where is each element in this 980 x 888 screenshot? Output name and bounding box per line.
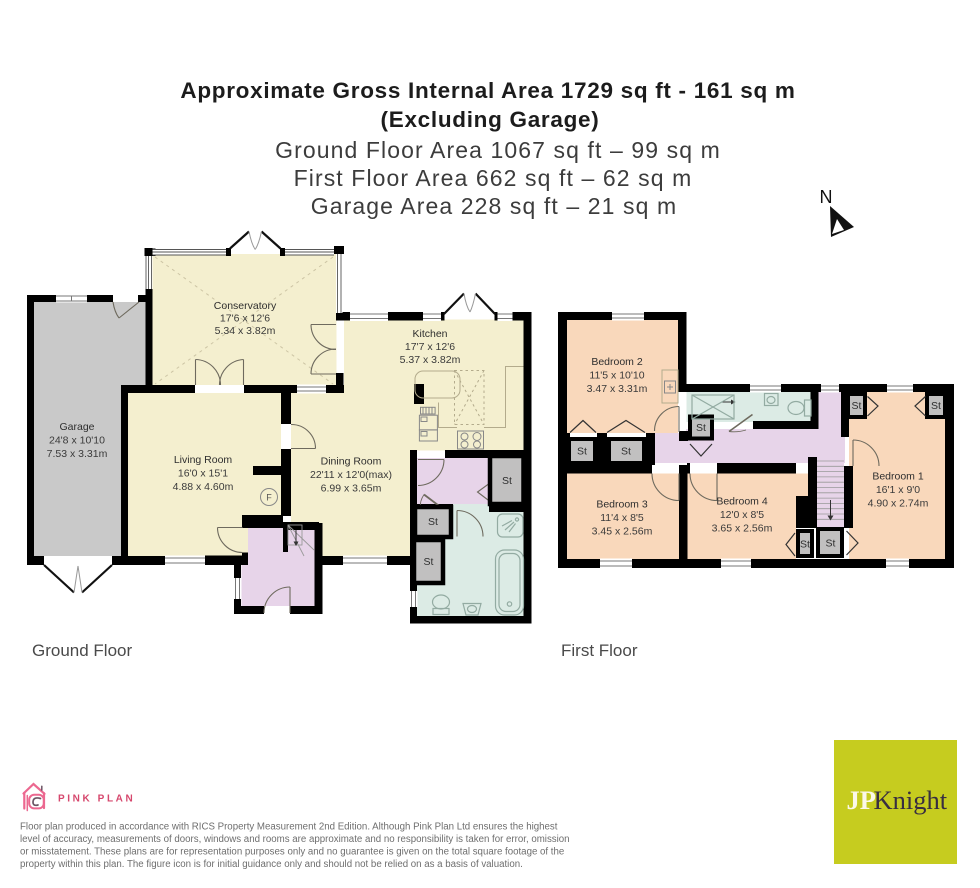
svg-text:First Floor Area 662 sq ft – 6: First Floor Area 662 sq ft – 62 sq m bbox=[294, 165, 693, 191]
svg-text:St: St bbox=[502, 475, 512, 487]
svg-text:St: St bbox=[826, 538, 836, 550]
svg-text:F: F bbox=[266, 493, 272, 503]
svg-text:N: N bbox=[820, 187, 833, 207]
svg-text:6.99 x 3.65m: 6.99 x 3.65m bbox=[321, 483, 382, 495]
svg-text:St: St bbox=[852, 400, 862, 412]
svg-text:St: St bbox=[931, 400, 941, 412]
svg-text:or misstatement. These plans a: or misstatement. These plans are for rep… bbox=[20, 847, 564, 858]
svg-text:16'0 x 15'1: 16'0 x 15'1 bbox=[178, 468, 228, 480]
svg-text:4.90 x 2.74m: 4.90 x 2.74m bbox=[868, 498, 929, 510]
svg-text:Approximate Gross Internal Are: Approximate Gross Internal Area 1729 sq … bbox=[180, 78, 795, 103]
svg-text:Ground Floor Area 1067 sq ft –: Ground Floor Area 1067 sq ft – 99 sq m bbox=[275, 137, 721, 163]
svg-text:4.88 x 4.60m: 4.88 x 4.60m bbox=[173, 481, 234, 493]
svg-text:Garage: Garage bbox=[59, 421, 94, 433]
svg-text:17'7 x 12'6: 17'7 x 12'6 bbox=[405, 341, 455, 353]
svg-text:24'8 x 10'10: 24'8 x 10'10 bbox=[49, 435, 105, 447]
svg-text:Bedroom 4: Bedroom 4 bbox=[716, 496, 768, 508]
svg-text:Bedroom 1: Bedroom 1 bbox=[872, 471, 924, 483]
svg-text:Bedroom 3: Bedroom 3 bbox=[596, 499, 648, 511]
svg-text:PINK PLAN: PINK PLAN bbox=[58, 794, 135, 805]
svg-text:Ground Floor: Ground Floor bbox=[32, 641, 132, 660]
svg-text:3.65 x 2.56m: 3.65 x 2.56m bbox=[712, 523, 773, 535]
svg-text:St: St bbox=[428, 516, 438, 528]
svg-text:St: St bbox=[696, 422, 706, 434]
svg-text:St: St bbox=[424, 556, 434, 568]
svg-text:JPKnight: JPKnight bbox=[847, 785, 948, 815]
svg-text:16'1 x 9'0: 16'1 x 9'0 bbox=[876, 484, 920, 496]
svg-text:St: St bbox=[800, 539, 810, 551]
svg-text:3.47 x 3.31m: 3.47 x 3.31m bbox=[587, 383, 648, 395]
svg-text:3.45 x 2.56m: 3.45 x 2.56m bbox=[592, 526, 653, 538]
svg-text:Conservatory: Conservatory bbox=[214, 300, 277, 312]
svg-text:Bedroom 2: Bedroom 2 bbox=[591, 356, 643, 368]
svg-text:17'6 x 12'6: 17'6 x 12'6 bbox=[220, 313, 270, 325]
svg-text:Floor plan produced in accorda: Floor plan produced in accordance with R… bbox=[20, 822, 558, 833]
svg-text:Kitchen: Kitchen bbox=[412, 328, 447, 340]
svg-text:5.37 x 3.82m: 5.37 x 3.82m bbox=[400, 354, 461, 366]
svg-text:5.34 x 3.82m: 5.34 x 3.82m bbox=[215, 325, 276, 337]
svg-text:7.53 x 3.31m: 7.53 x 3.31m bbox=[47, 448, 108, 460]
svg-text:level of accuracy, measurement: level of accuracy, measurements of doors… bbox=[20, 834, 570, 845]
svg-text:22'11 x 12'0(max): 22'11 x 12'0(max) bbox=[310, 469, 392, 481]
svg-text:12'0 x 8'5: 12'0 x 8'5 bbox=[720, 509, 764, 521]
svg-text:11'5 x 10'10: 11'5 x 10'10 bbox=[589, 370, 644, 382]
svg-text:First Floor: First Floor bbox=[561, 641, 638, 660]
svg-text:Living Room: Living Room bbox=[174, 454, 233, 466]
svg-text:St: St bbox=[621, 446, 631, 458]
svg-text:11'4 x 8'5: 11'4 x 8'5 bbox=[600, 512, 644, 524]
svg-text:St: St bbox=[577, 446, 587, 458]
svg-text:property within this plan. The: property within this plan. The figure ic… bbox=[20, 859, 523, 870]
svg-text:(Excluding Garage): (Excluding Garage) bbox=[381, 107, 600, 132]
svg-text:Dining Room: Dining Room bbox=[321, 456, 382, 468]
svg-text:Garage Area 228 sq ft – 21 sq: Garage Area 228 sq ft – 21 sq m bbox=[311, 193, 678, 219]
